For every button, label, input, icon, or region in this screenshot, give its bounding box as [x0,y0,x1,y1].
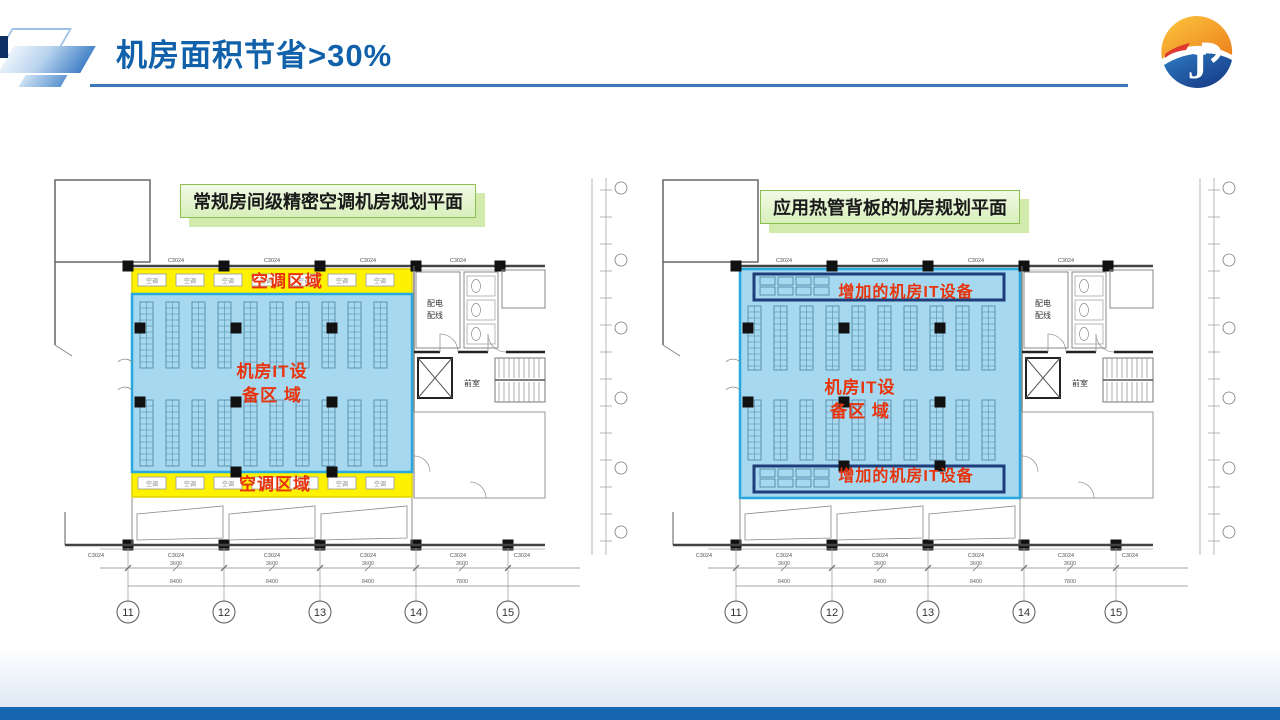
svg-text:15: 15 [502,607,514,619]
header-rule [90,84,1128,87]
svg-text:C3024: C3024 [168,553,184,559]
svg-text:C3024: C3024 [264,258,280,264]
footer-bar [0,707,1280,720]
aircon-area-label-top: 空调区域 [147,271,427,293]
svg-text:配线: 配线 [427,310,443,320]
svg-text:C3024: C3024 [168,258,184,264]
svg-text:C3024: C3024 [1058,553,1074,559]
it-area-line1: 机房IT设 [720,376,1000,400]
plan-right-title: 应用热管背板的机房规划平面 [760,190,1020,224]
svg-text:8400: 8400 [778,579,790,585]
it-area-line1: 机房IT设 [132,360,412,384]
svg-text:前室: 前室 [464,378,480,388]
svg-text:C3024: C3024 [264,553,280,559]
svg-text:C3024: C3024 [968,553,984,559]
svg-text:3600: 3600 [1064,561,1076,567]
svg-text:7800: 7800 [1064,579,1076,585]
svg-text:C3024: C3024 [776,553,792,559]
aircon-area-label-bottom: 空调区域 [135,474,415,496]
company-logo-icon: J [1157,12,1237,92]
svg-text:配线: 配线 [1035,310,1051,320]
floorplan-left: C3024C3024C3024C3024空调空调空调空调空调空调空调空调空调空调… [40,160,640,625]
svg-text:配电: 配电 [427,298,443,308]
svg-text:12: 12 [826,607,838,619]
header-decoration-edge [0,36,8,58]
svg-text:C3024: C3024 [450,553,466,559]
svg-text:J: J [1188,45,1207,87]
it-area-line2: 备区 域 [720,400,1000,424]
svg-text:12: 12 [218,607,230,619]
svg-text:3600: 3600 [266,561,278,567]
footer-gradient [0,649,1280,707]
svg-text:13: 13 [314,607,326,619]
svg-text:11: 11 [122,607,133,619]
svg-text:8400: 8400 [874,579,886,585]
floorplan-right: C3024C3024C3024C3024配电配线前室C3024C3024C302… [648,160,1248,625]
svg-text:C3024: C3024 [696,553,712,559]
svg-text:3600: 3600 [362,561,374,567]
svg-text:8400: 8400 [170,579,182,585]
svg-text:3600: 3600 [970,561,982,567]
svg-text:14: 14 [410,607,422,619]
svg-text:15: 15 [1110,607,1122,619]
svg-text:8400: 8400 [266,579,278,585]
slide: 机房面积节省>30% J C3024C3024C3024C3024空调空调空调空… [0,0,1280,720]
header-decoration-arrow [0,46,96,73]
svg-text:C3024: C3024 [360,553,376,559]
svg-text:前室: 前室 [1072,378,1088,388]
svg-text:C3024: C3024 [1122,553,1138,559]
svg-text:C3024: C3024 [776,258,792,264]
svg-text:14: 14 [1018,607,1030,619]
svg-text:C3024: C3024 [968,258,984,264]
plan-left-title: 常规房间级精密空调机房规划平面 [180,184,476,218]
it-area-label-right: 机房IT设 备区 域 [720,376,1000,424]
svg-text:3600: 3600 [778,561,790,567]
svg-text:8400: 8400 [970,579,982,585]
it-area-label-left: 机房IT设 备区 域 [132,360,412,408]
svg-text:8400: 8400 [362,579,374,585]
svg-text:C3024: C3024 [872,258,888,264]
svg-text:3600: 3600 [170,561,182,567]
svg-text:11: 11 [730,607,741,619]
svg-text:C3024: C3024 [360,258,376,264]
svg-text:3600: 3600 [456,561,468,567]
it-area-line2: 备区 域 [132,384,412,408]
header-decoration-small [19,75,68,87]
svg-text:3600: 3600 [874,561,886,567]
svg-text:C3024: C3024 [450,258,466,264]
svg-text:C3024: C3024 [514,553,530,559]
svg-text:13: 13 [922,607,934,619]
svg-text:配电: 配电 [1035,298,1051,308]
svg-text:7800: 7800 [456,579,468,585]
svg-text:C3024: C3024 [872,553,888,559]
svg-text:C3024: C3024 [88,553,104,559]
svg-text:C3024: C3024 [1058,258,1074,264]
added-it-label-top: 增加的机房IT设备 [808,282,1004,304]
page-title: 机房面积节省>30% [116,30,392,75]
added-it-label-bottom: 增加的机房IT设备 [808,466,1004,488]
